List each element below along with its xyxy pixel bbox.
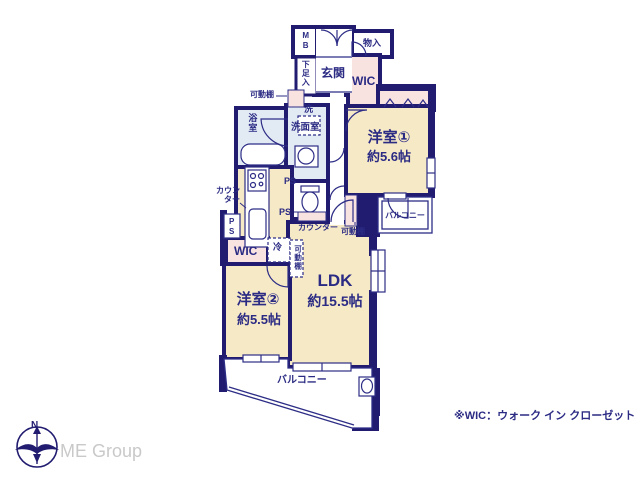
counter-right-label: カウンター <box>298 223 338 232</box>
bathroom-label: 浴室 <box>247 113 257 133</box>
counter-left-label: カウン ター <box>214 186 240 204</box>
storage-label: 物入 <box>352 38 392 48</box>
balcony-sink-bowl <box>362 379 373 393</box>
vanity-sink <box>298 148 314 164</box>
burner-2 <box>259 174 264 179</box>
washroom-label: 洗面室 <box>291 123 320 134</box>
wic-lower-label: WIC <box>234 245 257 259</box>
bedroom2-name: 洋室② <box>228 291 288 308</box>
bathtub <box>241 144 285 165</box>
fridge-label: 冷 <box>273 242 282 252</box>
balcony-upper-label: バルコニー <box>383 211 427 220</box>
floorplan-drawing <box>0 0 640 480</box>
entrance-floor <box>316 29 352 93</box>
ps-label-left: PS <box>227 217 236 237</box>
bedroom1-size: 約5.6帖 <box>356 150 422 165</box>
entrance-label: 玄関 <box>321 67 345 81</box>
stove <box>248 170 266 191</box>
toilet-bowl <box>302 192 318 212</box>
compass-north-label: N <box>31 420 38 432</box>
wall-closet-top <box>376 84 436 91</box>
ps-label-2: PS <box>279 207 291 217</box>
wic-upper-label: WIC <box>352 75 375 89</box>
opening-bedroom1-balcony <box>384 193 406 199</box>
ldk-name: LDK <box>304 271 366 291</box>
movable-shelf-ldk-label: 可動棚 <box>293 245 302 271</box>
movable-shelf-hall-label: 可動棚 <box>341 227 365 236</box>
brand-logo-text: ME Group <box>60 441 142 462</box>
meter-box-label: MB <box>301 31 310 51</box>
washer-label: 洗 <box>304 104 313 114</box>
balcony-lower-label: バルコニー <box>277 375 327 387</box>
bedroom1-name: 洋室① <box>358 129 420 146</box>
kitchen-sink <box>249 209 266 239</box>
toilet-tank <box>301 186 319 192</box>
compass <box>15 426 59 467</box>
movable-shelf-entrance-label: 可動棚 <box>250 90 274 99</box>
compass-tail <box>33 454 41 463</box>
burner-3 <box>251 183 256 188</box>
toilet-counter <box>298 212 326 221</box>
bedroom2-size: 約5.5帖 <box>231 313 287 328</box>
ps-label-1: PS <box>284 176 296 186</box>
movable-shelf-entrance <box>288 90 304 107</box>
wic-note: ※WIC：ウォーク イン クローゼット <box>454 410 635 423</box>
ldk-size: 約15.5帖 <box>299 293 371 309</box>
burner-4 <box>259 182 263 186</box>
floorplan-page: MB 物入 下足入 玄関 WIC 可動棚 洗 浴室 洗面室 洋室① 約5.6帖 … <box>0 0 640 480</box>
burner-1 <box>251 174 256 179</box>
corridor <box>330 93 344 225</box>
shoe-box-label: 下足入 <box>301 60 310 87</box>
